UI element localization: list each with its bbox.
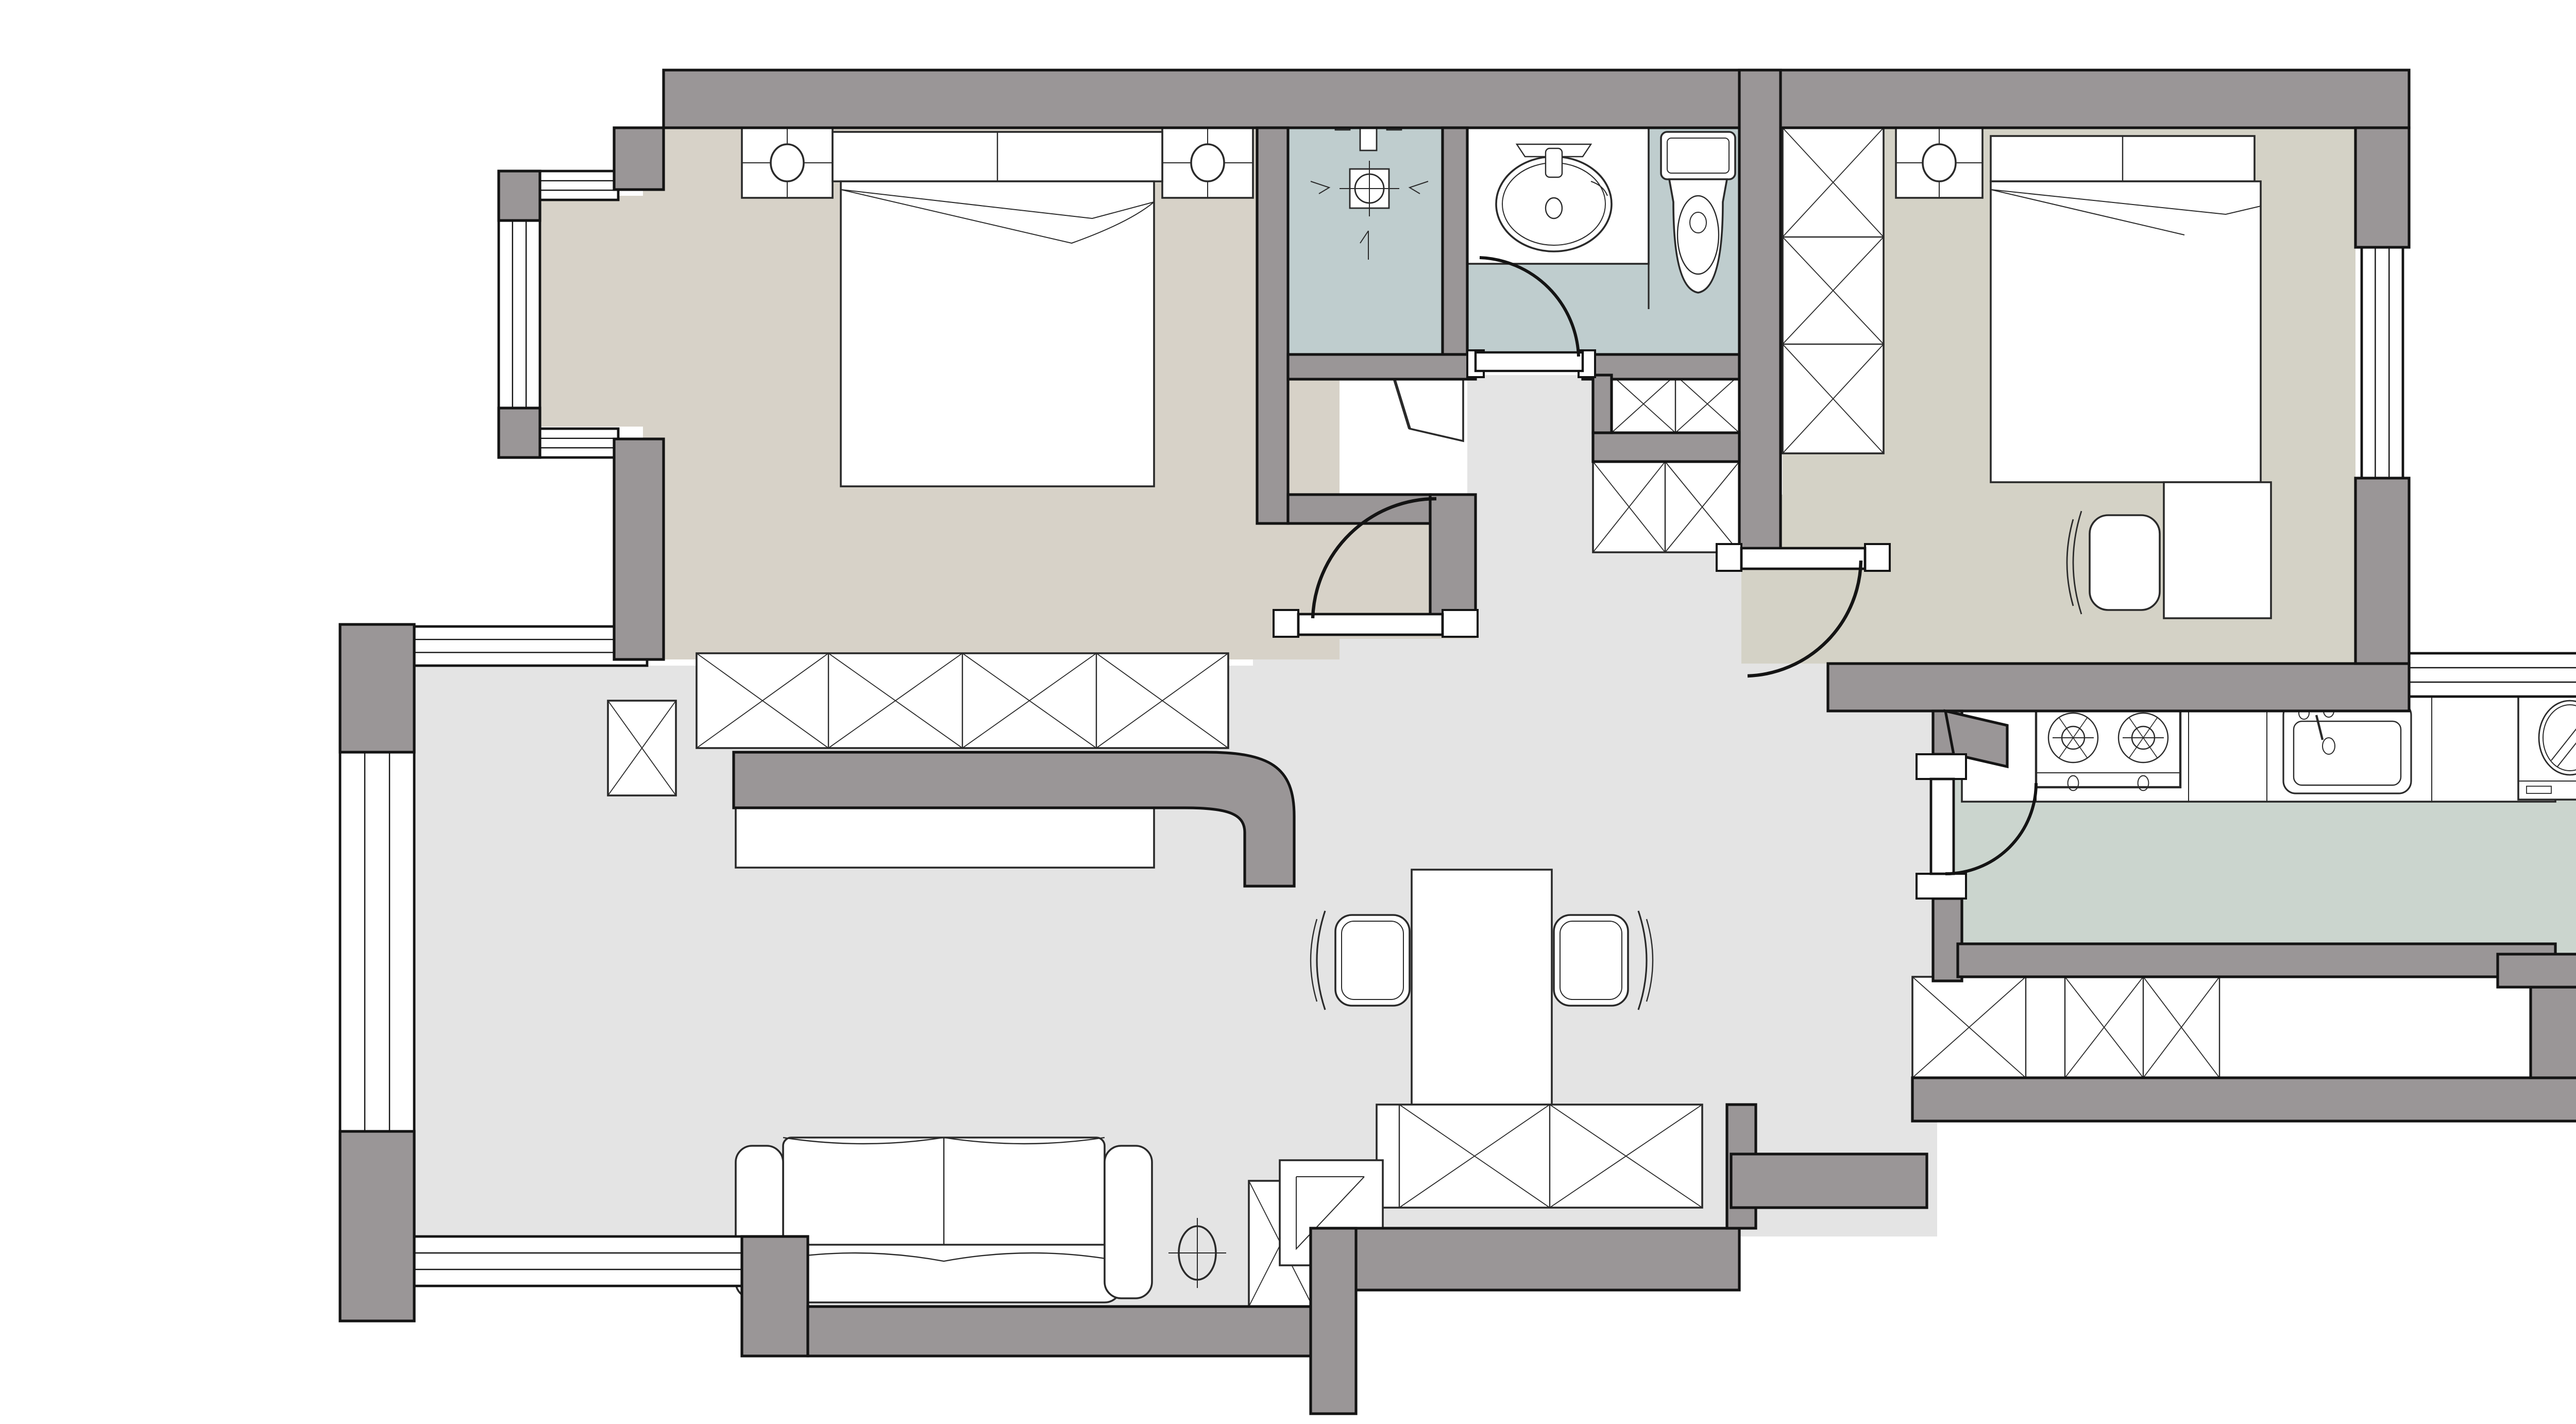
- wall-cabinet-divider: [1593, 433, 1739, 462]
- wall-bedroom2-south: [1828, 664, 2409, 711]
- lamp-icon: [1923, 144, 1956, 181]
- wall-bath-east: [1739, 70, 1781, 552]
- sofa-back: [767, 1245, 1121, 1302]
- wall-master-west-lower: [614, 439, 664, 659]
- laundry-appliances: [2518, 697, 2576, 800]
- wall-vestibule-east: [1593, 375, 1612, 433]
- lamp-icon: [771, 144, 804, 181]
- bedroom2-floor-west: [1783, 449, 1884, 495]
- desk: [2164, 482, 2271, 618]
- sideboard: [1377, 1105, 1702, 1208]
- bedroom2-wardrobe: [1783, 128, 1884, 453]
- wall-dining-south: [1311, 1228, 1739, 1290]
- door-leaf: [1931, 779, 1954, 874]
- wall-shower-south: [1288, 354, 1476, 379]
- wall-outer-south: [1912, 1078, 2576, 1121]
- wall-master-door-stub: [1430, 495, 1476, 622]
- shower-step: [1393, 375, 1463, 441]
- desk-chair: [2090, 515, 2160, 610]
- master-bay-floor: [540, 196, 655, 427]
- living-northwest-window: [414, 626, 647, 666]
- dining-chair: [1335, 915, 1410, 1006]
- floor-plan-canvas: [0, 0, 2576, 1424]
- wall-kitchen-south: [1958, 944, 2555, 977]
- wall-nook-top: [1288, 495, 1430, 523]
- hall-cabinets: [1593, 375, 1739, 552]
- wall-living-pier-north: [340, 624, 414, 752]
- wall-balcony-south: [2498, 954, 2576, 987]
- bedroom2-east-window: [2362, 247, 2403, 478]
- gas-hob-icon: [2036, 705, 2180, 790]
- structural-pier: [608, 701, 676, 795]
- wall-dining-step: [1311, 1228, 1356, 1414]
- wall-living-pier-south: [340, 1131, 414, 1321]
- door-leaf: [1298, 614, 1443, 635]
- living-south-window: [414, 1236, 742, 1286]
- bath-vestibule-floor: [1467, 375, 1593, 635]
- shower-room-floor: [1288, 128, 1443, 354]
- floor-plan-svg: [0, 0, 2576, 1424]
- door-leaf: [1741, 548, 1865, 569]
- double-bed: [1991, 181, 2261, 482]
- wall-outer-step: [2531, 987, 2576, 1078]
- dining-chair: [1554, 915, 1628, 1006]
- master-wardrobe: [697, 653, 1228, 748]
- wall-bedroom2-east-upper: [2355, 128, 2409, 247]
- wall-living-step: [742, 1236, 808, 1356]
- sofa-arm: [1105, 1146, 1152, 1298]
- wall-top: [664, 70, 2409, 128]
- living-bay-window: [340, 752, 414, 1131]
- dining-table: [1412, 870, 1552, 1105]
- double-bed: [841, 181, 1154, 486]
- wall-master-east: [1257, 128, 1288, 523]
- lamp-icon: [1191, 144, 1224, 181]
- tv-cabinet: [736, 802, 1154, 868]
- wall-bedroom2-east-lower: [2355, 478, 2409, 664]
- wall-bay-corner: [499, 408, 540, 457]
- base-cabinet-row: [1912, 977, 2555, 1078]
- wall-master-west-upper: [614, 128, 664, 190]
- wall-living-south: [808, 1307, 1340, 1356]
- wall-bay-corner: [499, 171, 540, 221]
- wall-shower-bath-partition: [1443, 128, 1467, 354]
- wall-entry-kitchen: [1731, 1154, 1927, 1208]
- door-leaf: [1476, 352, 1583, 371]
